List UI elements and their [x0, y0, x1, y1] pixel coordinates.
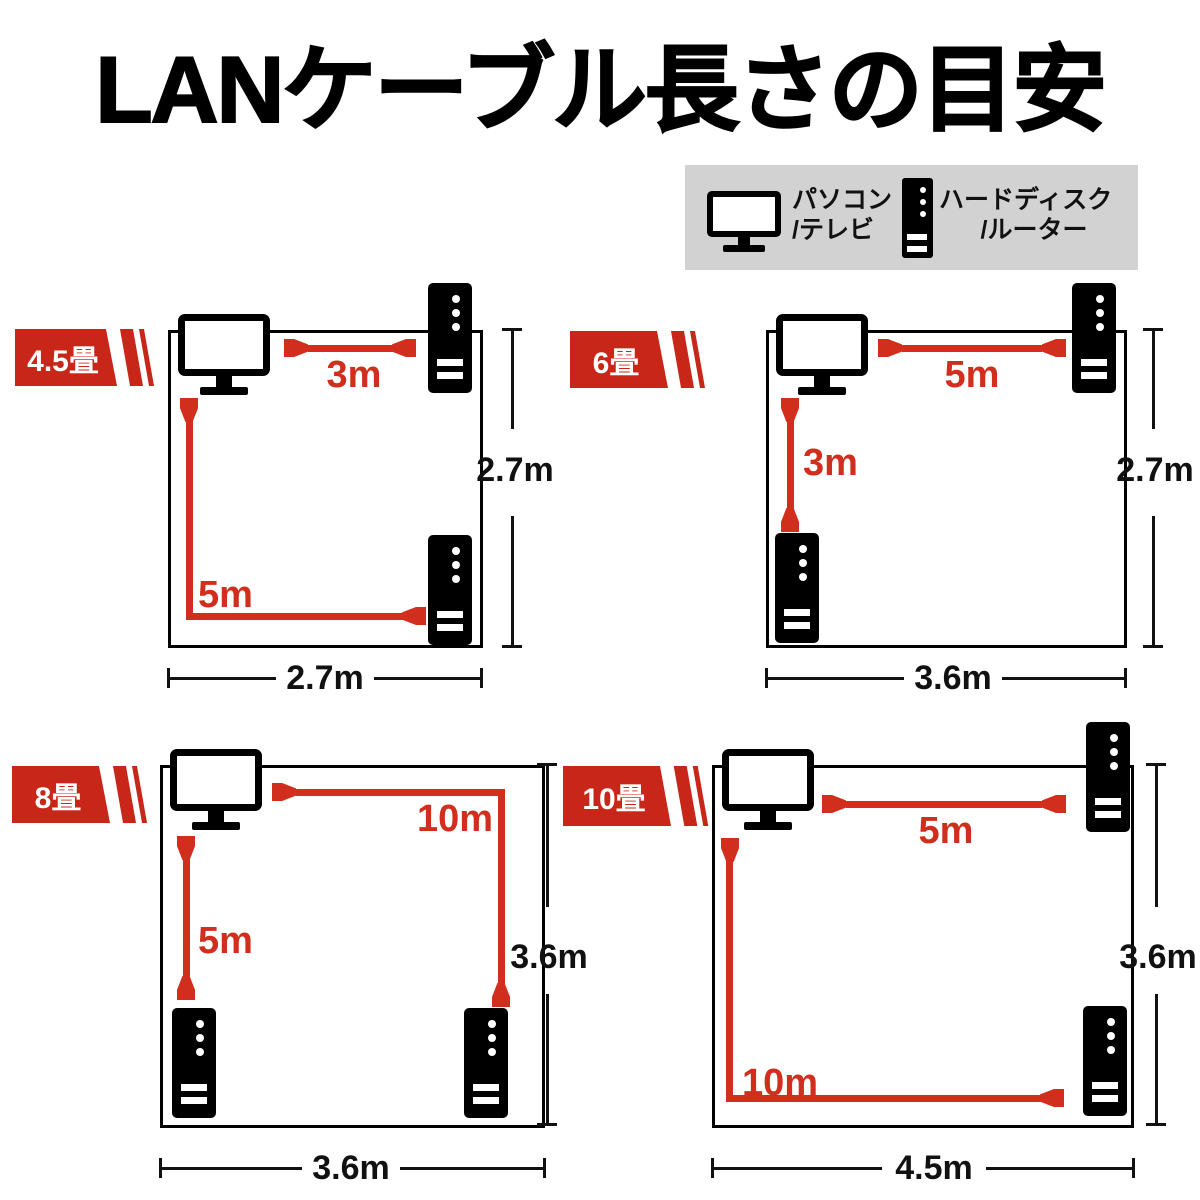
legend-router-line2: /ルーター [939, 215, 1129, 245]
room2-badge-label: 6畳 [570, 331, 668, 388]
tower-slot-bar [907, 246, 927, 252]
pc-tv-icon [707, 191, 781, 252]
room1-width-label: 2.7m [276, 661, 374, 695]
dim-line [374, 677, 480, 680]
tower-led-dot [1096, 295, 1104, 303]
tower-led-dot [799, 573, 807, 581]
tower-slot-bar [1095, 811, 1121, 818]
monitor-base [192, 822, 240, 830]
dim-tick [480, 668, 483, 688]
room4-badge: 10畳 [563, 766, 671, 826]
lan-cable [296, 789, 501, 796]
room4-height-label: 3.6m [1113, 940, 1200, 974]
dim-tick [537, 1123, 557, 1126]
dim-line [1155, 766, 1158, 907]
hdd-router-icon [428, 535, 472, 645]
dim-line [1152, 331, 1155, 429]
tower-led-dot [1110, 734, 1118, 742]
tower-led-dot [196, 1020, 204, 1028]
hdd-router-icon [1083, 1006, 1127, 1116]
dim-tick [1146, 1123, 1166, 1126]
tower-slot-bar [437, 611, 463, 618]
tower-slot-bar [1081, 359, 1107, 366]
tower-led-dot [452, 309, 460, 317]
room2-badge: 6畳 [570, 331, 668, 388]
hdd-router-icon [902, 178, 933, 258]
tower-led-dot [1096, 309, 1104, 317]
room2-width-label: 3.6m [904, 661, 1002, 695]
pc-tv-icon [170, 749, 262, 830]
room4-cable1-label: 5m [904, 812, 988, 850]
tower-led-dot [920, 187, 926, 193]
tower-led-dot [196, 1034, 204, 1042]
tower-slot-bar [473, 1097, 499, 1104]
legend-router-label: ハードディスク /ルーター [939, 185, 1129, 245]
lan-cable [726, 860, 733, 1102]
tower-led-dot [799, 559, 807, 567]
hdd-router-icon [775, 533, 819, 643]
tower-slot-bar [784, 622, 810, 629]
monitor-stand [814, 376, 830, 387]
hdd-router-icon [172, 1008, 216, 1118]
room1-badge-label: 4.5畳 [15, 329, 117, 386]
dim-line [511, 331, 514, 429]
tower-led-dot [1110, 762, 1118, 770]
lan-cable [846, 801, 1042, 808]
hdd-router-icon [428, 283, 472, 393]
tower-led-dot [920, 211, 926, 217]
tower-led-dot [799, 545, 807, 553]
tower-slot-bar [1095, 798, 1121, 805]
lan-cable [902, 345, 1042, 352]
room3-badge-label: 8畳 [12, 766, 110, 823]
room2-cable2-label: 3m [803, 444, 858, 482]
tower-slot-bar [437, 372, 463, 379]
dim-tick [1132, 1158, 1135, 1178]
monitor-screen [722, 749, 814, 811]
legend-router-line1: ハードディスク [939, 185, 1129, 215]
dim-line [714, 1167, 882, 1170]
tower-slot-bar [1092, 1082, 1118, 1089]
room3-height-label: 3.6m [504, 940, 594, 974]
dim-tick [543, 1158, 546, 1178]
legend-pc-line1: パソコン [792, 185, 892, 215]
tower-led-dot [1110, 748, 1118, 756]
tower-led-dot [488, 1048, 496, 1056]
monitor-base [798, 387, 846, 395]
pc-tv-icon [722, 749, 814, 830]
monitor-screen [178, 314, 270, 376]
lan-cable [308, 345, 394, 352]
dim-line [546, 994, 549, 1123]
tower-led-dot [196, 1048, 204, 1056]
tower-led-dot [452, 547, 460, 555]
tower-led-dot [488, 1020, 496, 1028]
monitor-screen [776, 314, 868, 376]
monitor-screen [170, 749, 262, 811]
monitor-base [744, 822, 792, 830]
tower-slot-bar [437, 359, 463, 366]
tower-led-dot [1096, 323, 1104, 331]
tower-slot-bar [181, 1084, 207, 1091]
dim-line [1155, 994, 1158, 1123]
infographic-canvas: LANケーブル長さの目安 パソコン /テレビ ハードディスク /ルーター 2.7… [0, 0, 1200, 1200]
dim-line [400, 1167, 543, 1170]
tower-slot-bar [181, 1097, 207, 1104]
room4-badge-label: 10畳 [563, 766, 671, 826]
dim-line [170, 677, 276, 680]
dim-tick [1143, 645, 1163, 648]
tower-slot-bar [437, 624, 463, 631]
tower-led-dot [1107, 1046, 1115, 1054]
dim-line [768, 677, 904, 680]
lan-cable [186, 420, 193, 620]
legend-pc-line2: /テレビ [792, 215, 892, 245]
page-title: LANケーブル長さの目安 [95, 14, 1105, 150]
tower-slot-bar [1092, 1095, 1118, 1102]
room3-cable1-label: 10m [405, 800, 493, 838]
monitor-screen [707, 191, 781, 237]
monitor-base [723, 245, 765, 252]
monitor-stand [216, 376, 232, 387]
tower-slot-bar [1081, 372, 1107, 379]
room1-badge: 4.5畳 [15, 329, 117, 386]
tower-slot-bar [473, 1084, 499, 1091]
monitor-base [200, 387, 248, 395]
room4-width-label: 4.5m [882, 1151, 986, 1185]
tower-led-dot [452, 295, 460, 303]
lan-cable [787, 420, 794, 510]
monitor-stand [208, 811, 224, 822]
dim-line [986, 1167, 1132, 1170]
room3-cable2-label: 5m [198, 922, 253, 960]
dim-line [1002, 677, 1124, 680]
monitor-stand [738, 237, 750, 245]
dim-line [511, 516, 514, 646]
legend-pc-label: パソコン /テレビ [792, 185, 892, 245]
lan-cable [498, 789, 505, 985]
dim-line [1152, 516, 1155, 646]
hdd-router-icon [1086, 722, 1130, 832]
tower-led-dot [920, 199, 926, 205]
room2-cable1-label: 5m [930, 356, 1014, 394]
tower-led-dot [452, 561, 460, 569]
room3-badge: 8畳 [12, 766, 110, 823]
room4-cable2-label: 10m [742, 1064, 818, 1102]
dim-line [162, 1167, 302, 1170]
tower-slot-bar [784, 609, 810, 616]
room3-width-label: 3.6m [302, 1151, 400, 1185]
room1-height-label: 2.7m [470, 453, 560, 487]
tower-led-dot [488, 1034, 496, 1042]
room2-height-label: 2.7m [1110, 453, 1200, 487]
dim-line [546, 766, 549, 907]
hdd-router-icon [464, 1008, 508, 1118]
tower-led-dot [452, 575, 460, 583]
room1-cable1-label: 3m [312, 356, 396, 394]
hdd-router-icon [1072, 283, 1116, 393]
dim-tick [1124, 668, 1127, 688]
tower-slot-bar [907, 234, 927, 240]
legend: パソコン /テレビ ハードディスク /ルーター [685, 165, 1138, 270]
tower-led-dot [1107, 1032, 1115, 1040]
pc-tv-icon [776, 314, 868, 395]
monitor-stand [760, 811, 776, 822]
room1-cable2-label: 5m [198, 576, 253, 614]
tower-led-dot [452, 323, 460, 331]
pc-tv-icon [178, 314, 270, 395]
lan-cable [183, 858, 190, 978]
tower-led-dot [1107, 1018, 1115, 1026]
dim-tick [502, 645, 522, 648]
